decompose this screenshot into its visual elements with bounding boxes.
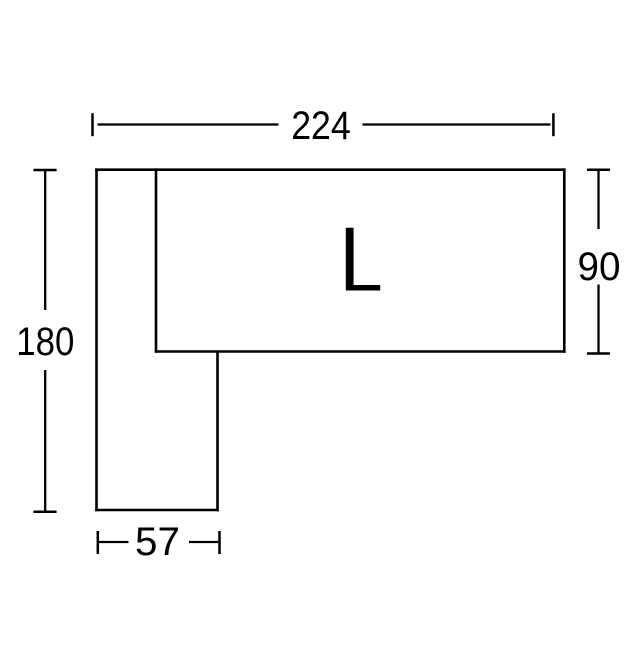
- svg-text:180: 180: [16, 320, 74, 364]
- svg-text:224: 224: [291, 104, 351, 148]
- svg-text:57: 57: [135, 520, 180, 564]
- svg-text:90: 90: [578, 245, 621, 289]
